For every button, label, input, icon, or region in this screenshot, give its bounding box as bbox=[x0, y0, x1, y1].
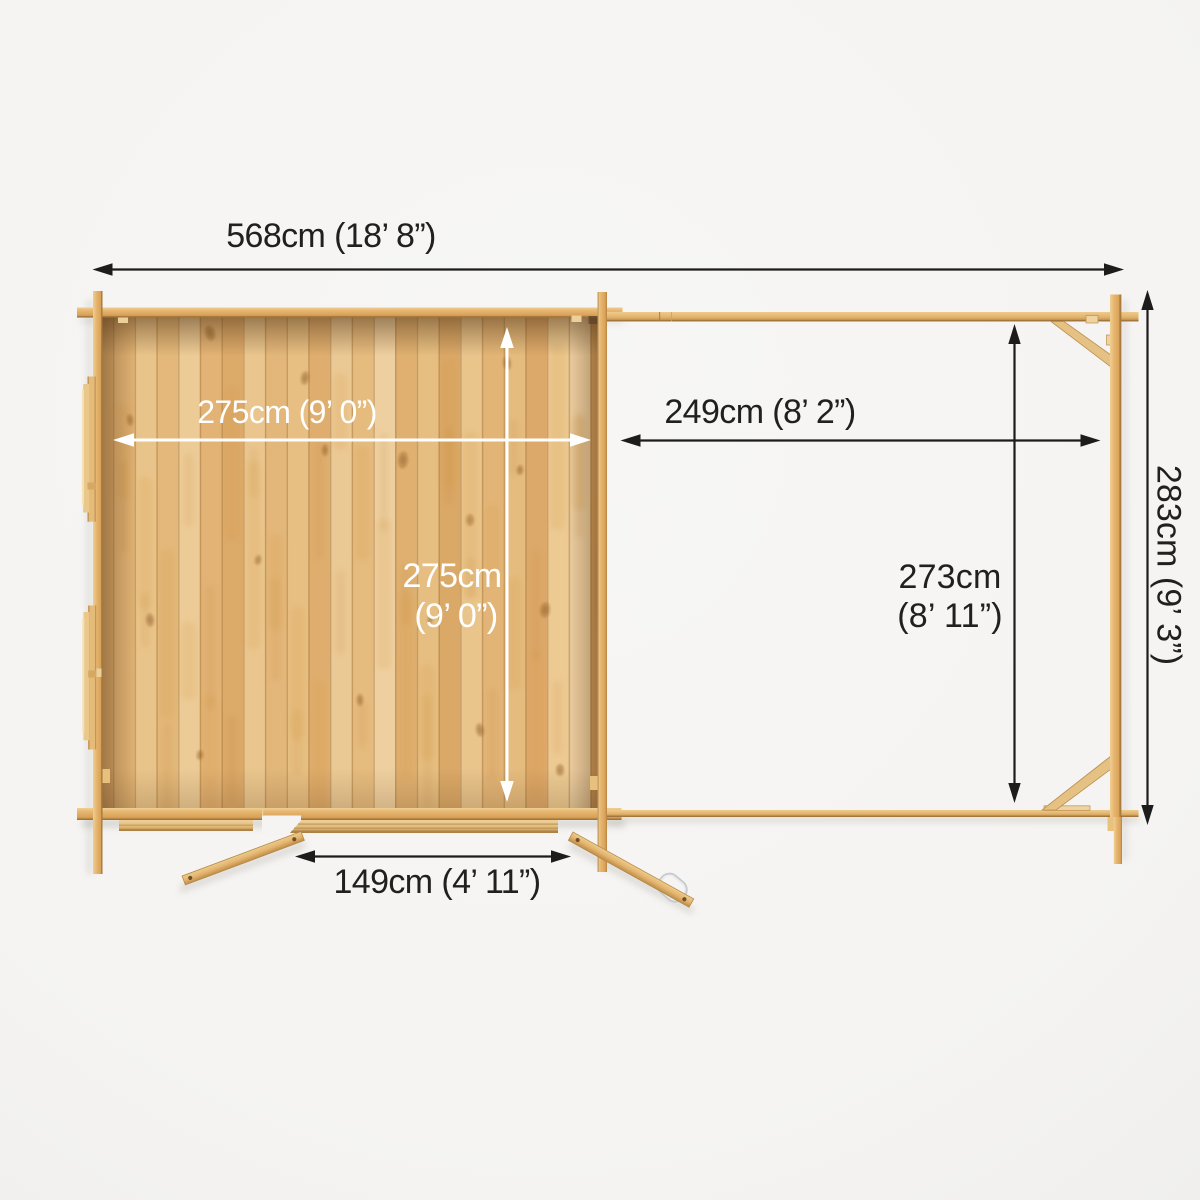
svg-text:283cm (9’ 3”): 283cm (9’ 3”) bbox=[1150, 465, 1188, 665]
svg-text:273cm: 273cm bbox=[898, 558, 1001, 596]
svg-text:149cm (4’ 11”): 149cm (4’ 11”) bbox=[333, 863, 540, 901]
svg-text:275cm: 275cm bbox=[402, 557, 501, 595]
svg-text:275cm (9’ 0”): 275cm (9’ 0”) bbox=[197, 394, 377, 430]
svg-text:(9’ 0”): (9’ 0”) bbox=[414, 597, 497, 635]
svg-text:568cm (18’ 8”): 568cm (18’ 8”) bbox=[226, 217, 436, 255]
svg-text:249cm (8’ 2”): 249cm (8’ 2”) bbox=[664, 393, 855, 431]
svg-text:(8’ 11”): (8’ 11”) bbox=[897, 597, 1003, 635]
